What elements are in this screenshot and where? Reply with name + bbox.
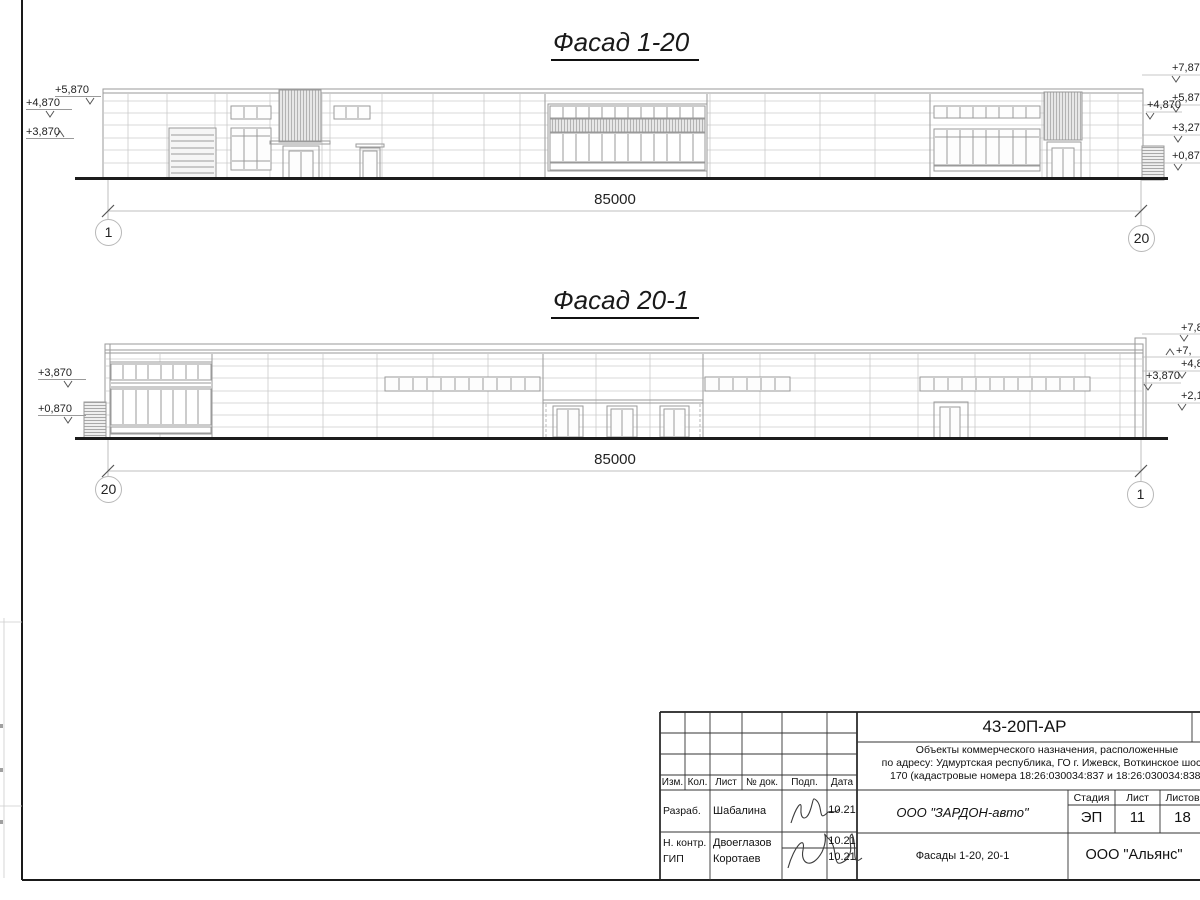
elevation-mark: +7,8 (1181, 322, 1200, 334)
elevation-mark: +3,870 (38, 367, 86, 380)
elevation-mark: +4,870 (1147, 99, 1181, 111)
elevation-mark: +3,870 (1146, 370, 1180, 382)
dimension-label: 85000 (565, 191, 665, 208)
project-description-line1: Объекты коммерческого назначения, распол… (859, 744, 1200, 756)
facade-1-20-drawing (75, 89, 1168, 180)
row-name: Шабалина (713, 805, 766, 817)
row-date: 10.21 (828, 835, 856, 847)
axis-bubble-1: 1 (95, 219, 122, 246)
design-org: ООО "Альянс" (1068, 847, 1200, 863)
stage-label: Стадия (1068, 792, 1115, 804)
customer-company: ООО "ЗАРДОН-авто" (857, 805, 1068, 820)
row-role: Разраб. (663, 805, 701, 817)
elevation-mark: +7, (1176, 345, 1192, 357)
elevation-mark: +3,870 (26, 126, 74, 139)
dimension-label: 85000 (565, 451, 665, 468)
sheet-number: 11 (1115, 809, 1160, 826)
project-description-line2: по адресу: Удмуртская республика, ГО г. … (859, 757, 1200, 769)
elevation-mark: +4,8 (1181, 358, 1200, 370)
column-header-kol: Кол. (685, 777, 710, 788)
project-description-line3: 170 (кадастровые номера 18:26:030034:837… (859, 770, 1200, 782)
row-name: Двоеглазов (713, 837, 771, 849)
column-header-list: Лист (710, 777, 742, 788)
elevation-mark: +5,870 (55, 84, 101, 97)
row-role: ГИП (663, 853, 684, 865)
elevation-mark: +7,87 (1172, 62, 1200, 74)
elevation-mark: +4,870 (26, 97, 72, 110)
doc-code: 43-20П-АР (857, 717, 1192, 737)
axis-bubble-20: 20 (1128, 225, 1155, 252)
facade-1-20-title: Фасад 1-20 (551, 27, 699, 61)
sheets-label: Листов (1160, 792, 1200, 804)
ground-line-bottom (75, 437, 1168, 440)
axis-bubble-20: 20 (95, 476, 122, 503)
elevation-mark: +2,1 (1181, 390, 1200, 402)
row-name: Коротаев (713, 853, 761, 865)
row-date: 10.21 (828, 804, 856, 816)
row-date: 10.21 (828, 851, 856, 863)
row-role: Н. контр. (663, 837, 706, 849)
elevation-mark: +0,870 (38, 403, 86, 416)
column-header-data: Дата (827, 777, 857, 788)
sheets-total: 18 (1160, 809, 1200, 826)
column-header-dok: № док. (742, 777, 782, 788)
axis-bubble-1: 1 (1127, 481, 1154, 508)
ground-line-top (75, 177, 1168, 180)
elevation-mark: +0,87 (1172, 150, 1200, 162)
elevation-mark: +3,27 (1172, 122, 1200, 134)
sheet-title: Фасады 1-20, 20-1 (857, 850, 1068, 862)
sheet-label: Лист (1115, 792, 1160, 804)
facade-20-1-drawing (75, 338, 1168, 440)
stage-value: ЭП (1068, 809, 1115, 826)
column-header-izm: Изм. (660, 777, 685, 788)
drawing-sheet: { "sheet": { "facade_top": { "title": "Ф… (0, 0, 1200, 900)
facade-20-1-title: Фасад 20-1 (551, 285, 699, 319)
column-header-podp: Подп. (782, 777, 827, 788)
